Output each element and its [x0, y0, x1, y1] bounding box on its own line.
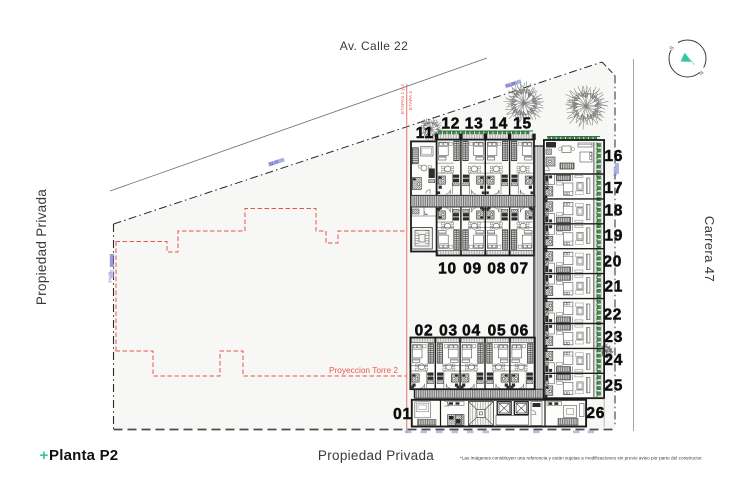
svg-text:ETAPAS 1 y 2: ETAPAS 1 y 2 [400, 84, 406, 114]
svg-text:Planta P2: Planta P2 [49, 447, 118, 464]
svg-text:26: 26 [586, 405, 605, 422]
svg-text:Propiedad Privada: Propiedad Privada [34, 189, 49, 305]
svg-text:18: 18 [604, 203, 623, 220]
svg-text:10: 10 [438, 261, 457, 278]
svg-text:Proyeccion Torre 2: Proyeccion Torre 2 [329, 365, 398, 375]
svg-text:05: 05 [488, 323, 507, 340]
svg-text:09: 09 [463, 261, 482, 278]
svg-text:04: 04 [462, 323, 481, 340]
svg-text:15: 15 [513, 116, 532, 133]
svg-text:Av. Calle 22: Av. Calle 22 [340, 39, 408, 53]
svg-text:12: 12 [441, 116, 460, 133]
svg-text:11: 11 [416, 125, 434, 142]
svg-text:Carrera 47: Carrera 47 [702, 216, 717, 282]
svg-text:22: 22 [603, 307, 622, 324]
svg-text:14: 14 [489, 116, 508, 133]
svg-text:ETAPA 3: ETAPA 3 [408, 91, 414, 110]
svg-text:08: 08 [487, 261, 506, 278]
svg-text:24: 24 [604, 352, 623, 369]
svg-text:+: + [40, 447, 49, 464]
svg-text:01: 01 [393, 406, 412, 423]
svg-text:19: 19 [604, 228, 623, 245]
svg-text:17: 17 [604, 180, 623, 197]
svg-text:06: 06 [510, 323, 529, 340]
svg-text:23: 23 [604, 329, 623, 346]
svg-text:Propiedad Privada: Propiedad Privada [318, 448, 434, 463]
svg-text:21: 21 [604, 279, 623, 296]
svg-text:20: 20 [603, 254, 622, 271]
svg-text:03: 03 [439, 323, 458, 340]
svg-text:07: 07 [510, 261, 529, 278]
svg-text:13: 13 [465, 116, 484, 133]
svg-text:02: 02 [415, 323, 434, 340]
svg-text:16: 16 [604, 148, 623, 165]
svg-text:*Las imágenes constituyen una: *Las imágenes constituyen una referencia… [460, 456, 703, 461]
svg-text:25: 25 [604, 378, 623, 395]
